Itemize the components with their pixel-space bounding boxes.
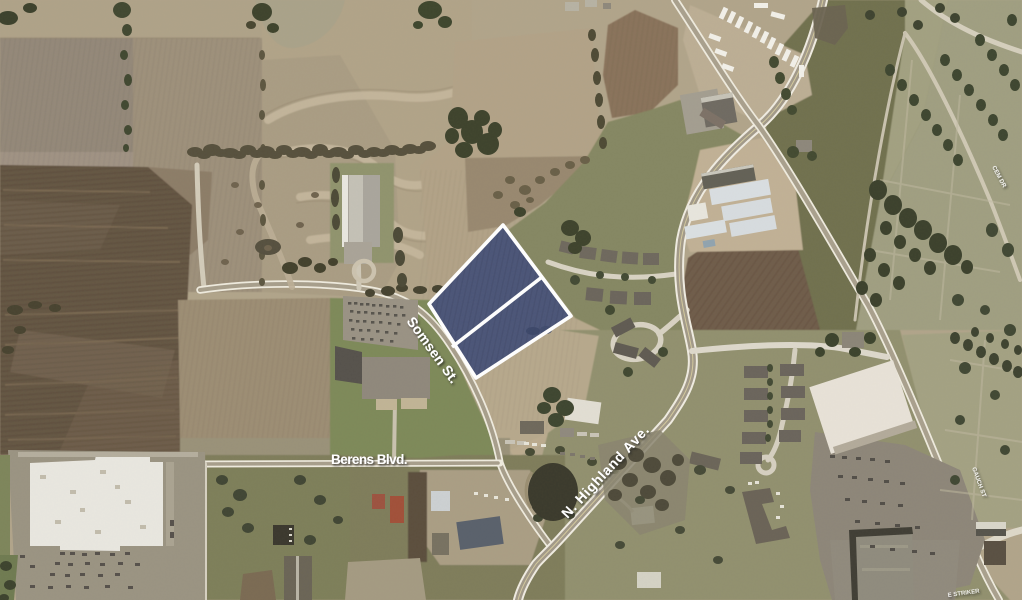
svg-text:Berens Blvd.: Berens Blvd. [331, 452, 407, 467]
